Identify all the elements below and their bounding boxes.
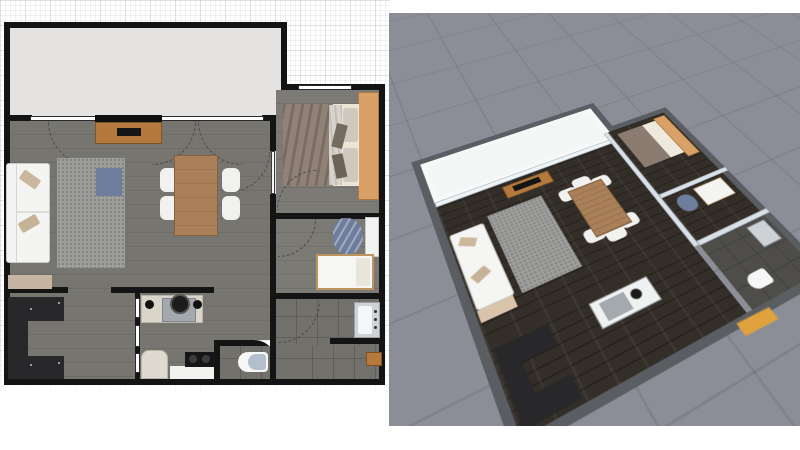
hob-burner-large [170, 294, 190, 314]
fridge [141, 350, 168, 379]
wardrobe [358, 92, 379, 200]
hob-burner [145, 300, 154, 309]
viewport-3d[interactable] [389, 13, 800, 426]
dining-table [174, 155, 218, 236]
closet-unit [28, 297, 64, 321]
desk [365, 217, 379, 257]
window [135, 298, 140, 318]
plan-3d-panel [390, 0, 800, 450]
wood-stool [366, 352, 382, 366]
cooktop-burners [189, 355, 197, 363]
hallway [214, 293, 270, 340]
blue-cushion [96, 168, 122, 196]
single-bed-pillow [356, 258, 370, 286]
window [135, 353, 140, 373]
toilet-lid [248, 354, 266, 370]
sideboard [8, 275, 52, 289]
closet-unit [8, 297, 28, 379]
sofa-cushion-line [17, 211, 49, 213]
door-leaf [271, 151, 275, 194]
tv-screen [95, 115, 162, 122]
scene-3d [389, 13, 800, 426]
closet-unit [28, 356, 64, 379]
kitchen-counter-2 [170, 366, 214, 379]
hob-burner [193, 300, 202, 309]
blue-blanket [333, 218, 363, 254]
plan-2d-panel[interactable] [0, 0, 390, 450]
sofa-back-line [16, 164, 17, 262]
closet-handles [30, 308, 32, 310]
window [298, 85, 352, 90]
window [135, 325, 140, 347]
dining-chairs-right [222, 168, 240, 192]
media-box [117, 128, 141, 136]
wall-segment [330, 338, 385, 344]
vanity-basin [358, 306, 372, 334]
tilted-plane [411, 86, 800, 426]
floor-plan-2d [4, 22, 385, 385]
room-terrace [10, 28, 281, 117]
faucet-dots [374, 310, 377, 313]
wall-segment [4, 379, 385, 385]
